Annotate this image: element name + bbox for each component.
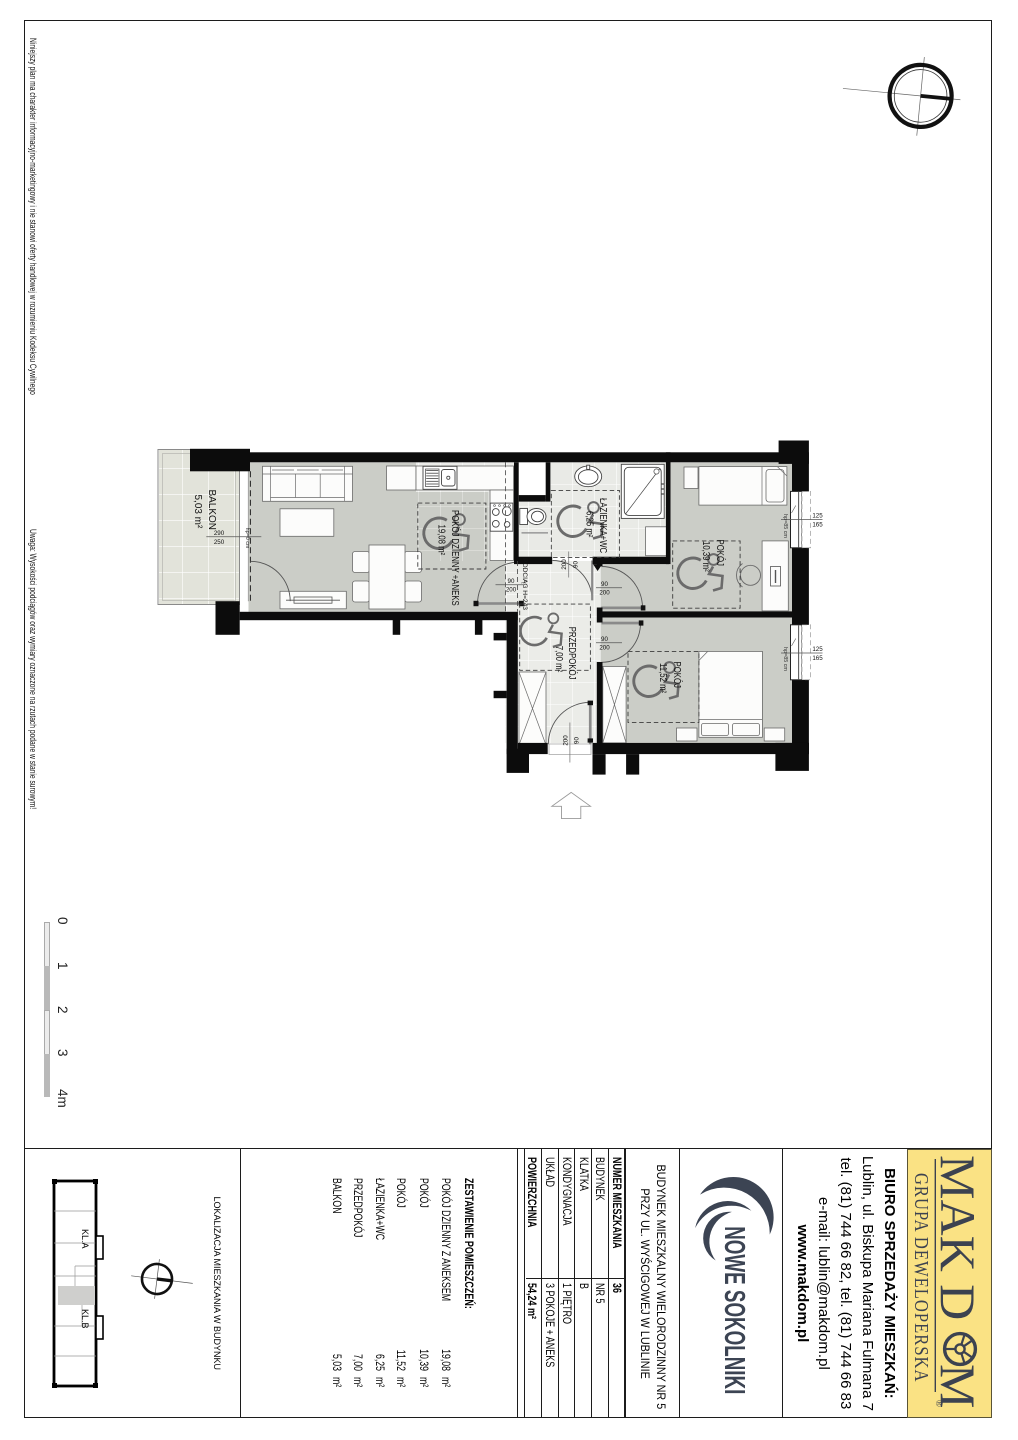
svg-text:200: 200 — [599, 645, 610, 652]
svg-text:PRZEDPOKÓJ: PRZEDPOKÓJ — [567, 627, 578, 680]
svg-text:125: 125 — [812, 646, 823, 653]
svg-text:hp=85 cm: hp=85 cm — [782, 647, 788, 671]
svg-text:6,25 m²: 6,25 m² — [584, 511, 595, 537]
svg-text:250: 250 — [214, 539, 225, 546]
svg-text:165: 165 — [812, 655, 823, 662]
svg-text:11,52 m²: 11,52 m² — [658, 663, 669, 693]
svg-text:90: 90 — [601, 581, 608, 588]
svg-text:90: 90 — [573, 561, 580, 568]
svg-text:200: 200 — [506, 587, 517, 594]
svg-text:5,03 m²: 5,03 m² — [192, 495, 203, 529]
svg-text:90: 90 — [574, 737, 581, 744]
svg-text:200: 200 — [561, 559, 568, 570]
svg-text:7,00 m²: 7,00 m² — [554, 646, 565, 672]
svg-text:BALKON: BALKON — [206, 490, 217, 530]
svg-text:POKÓJ: POKÓJ — [715, 540, 726, 566]
svg-text:90: 90 — [601, 636, 608, 643]
svg-text:ŁAZIENKA+WC: ŁAZIENKA+WC — [598, 498, 609, 554]
svg-text:200: 200 — [562, 735, 569, 746]
svg-text:125: 125 — [812, 513, 823, 520]
svg-text:POKÓJ: POKÓJ — [672, 662, 683, 688]
svg-text:290: 290 — [214, 530, 225, 537]
svg-text:90: 90 — [508, 578, 515, 585]
svg-text:200: 200 — [599, 590, 610, 597]
svg-text:POKÓJ DZIENNY +ANEKS: POKÓJ DZIENNY +ANEKS — [450, 510, 461, 606]
svg-text:hp=85 cm: hp=85 cm — [782, 514, 788, 538]
svg-text:hp=0 cm: hp=0 cm — [244, 528, 250, 549]
svg-text:PODCIĄG H=243: PODCIĄG H=243 — [521, 558, 528, 610]
svg-text:165: 165 — [812, 521, 823, 528]
svg-text:19,08 m²: 19,08 m² — [436, 525, 447, 556]
svg-text:10,39 m²: 10,39 m² — [701, 541, 712, 572]
